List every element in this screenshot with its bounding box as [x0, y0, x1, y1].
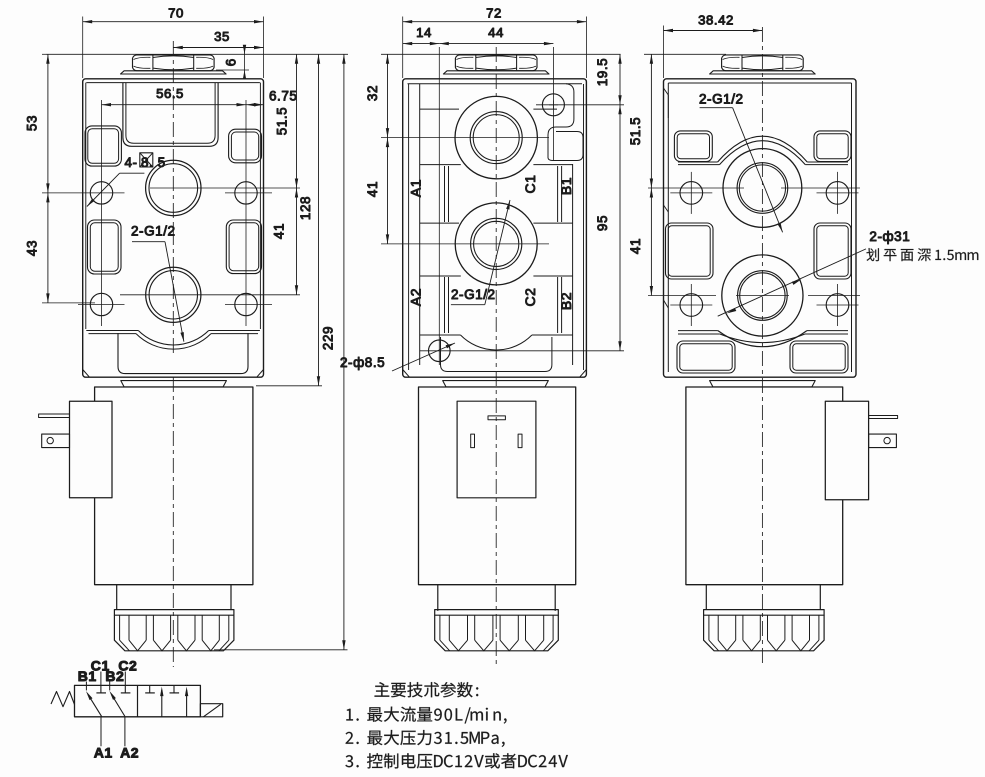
svg-text:19.5: 19.5 — [595, 58, 610, 86]
svg-text:8. 5: 8. 5 — [141, 155, 166, 170]
svg-text:A1: A1 — [408, 179, 424, 197]
svg-text:C1: C1 — [522, 175, 538, 194]
svg-text:128: 128 — [298, 196, 313, 220]
svg-text:41: 41 — [628, 238, 643, 254]
svg-text:C2: C2 — [522, 288, 538, 307]
svg-text:35: 35 — [214, 29, 230, 44]
svg-text:41: 41 — [272, 223, 287, 239]
svg-text:38.42: 38.42 — [698, 13, 734, 28]
svg-text:95: 95 — [595, 215, 610, 231]
svg-text:B2: B2 — [558, 292, 574, 310]
svg-text:44: 44 — [488, 25, 504, 40]
svg-text:229: 229 — [321, 326, 336, 350]
svg-text:A2: A2 — [120, 744, 139, 760]
svg-text:51.5: 51.5 — [275, 107, 290, 135]
svg-text:41: 41 — [365, 181, 380, 197]
svg-text:43: 43 — [25, 240, 40, 256]
svg-text:14: 14 — [416, 25, 432, 40]
svg-text:2-ф31: 2-ф31 — [869, 229, 910, 244]
svg-text:6: 6 — [224, 58, 239, 66]
svg-text:72: 72 — [486, 6, 502, 21]
svg-text:B1: B1 — [558, 177, 574, 195]
svg-text:51.5: 51.5 — [628, 117, 643, 145]
svg-text:2-ф8.5: 2-ф8.5 — [340, 355, 385, 370]
svg-text:2-G1/2: 2-G1/2 — [131, 224, 176, 239]
svg-text:B1: B1 — [78, 668, 97, 684]
svg-text:6.75: 6.75 — [269, 89, 297, 104]
svg-text:B2: B2 — [105, 668, 124, 684]
svg-text:70: 70 — [168, 6, 184, 21]
svg-text:56.5: 56.5 — [156, 86, 184, 101]
svg-text:32: 32 — [365, 85, 380, 101]
svg-text:4-: 4- — [125, 155, 138, 170]
svg-text:A1: A1 — [94, 744, 113, 760]
svg-text:2-G1/2: 2-G1/2 — [699, 92, 744, 107]
svg-text:53: 53 — [25, 115, 40, 131]
svg-text:A2: A2 — [408, 288, 424, 306]
